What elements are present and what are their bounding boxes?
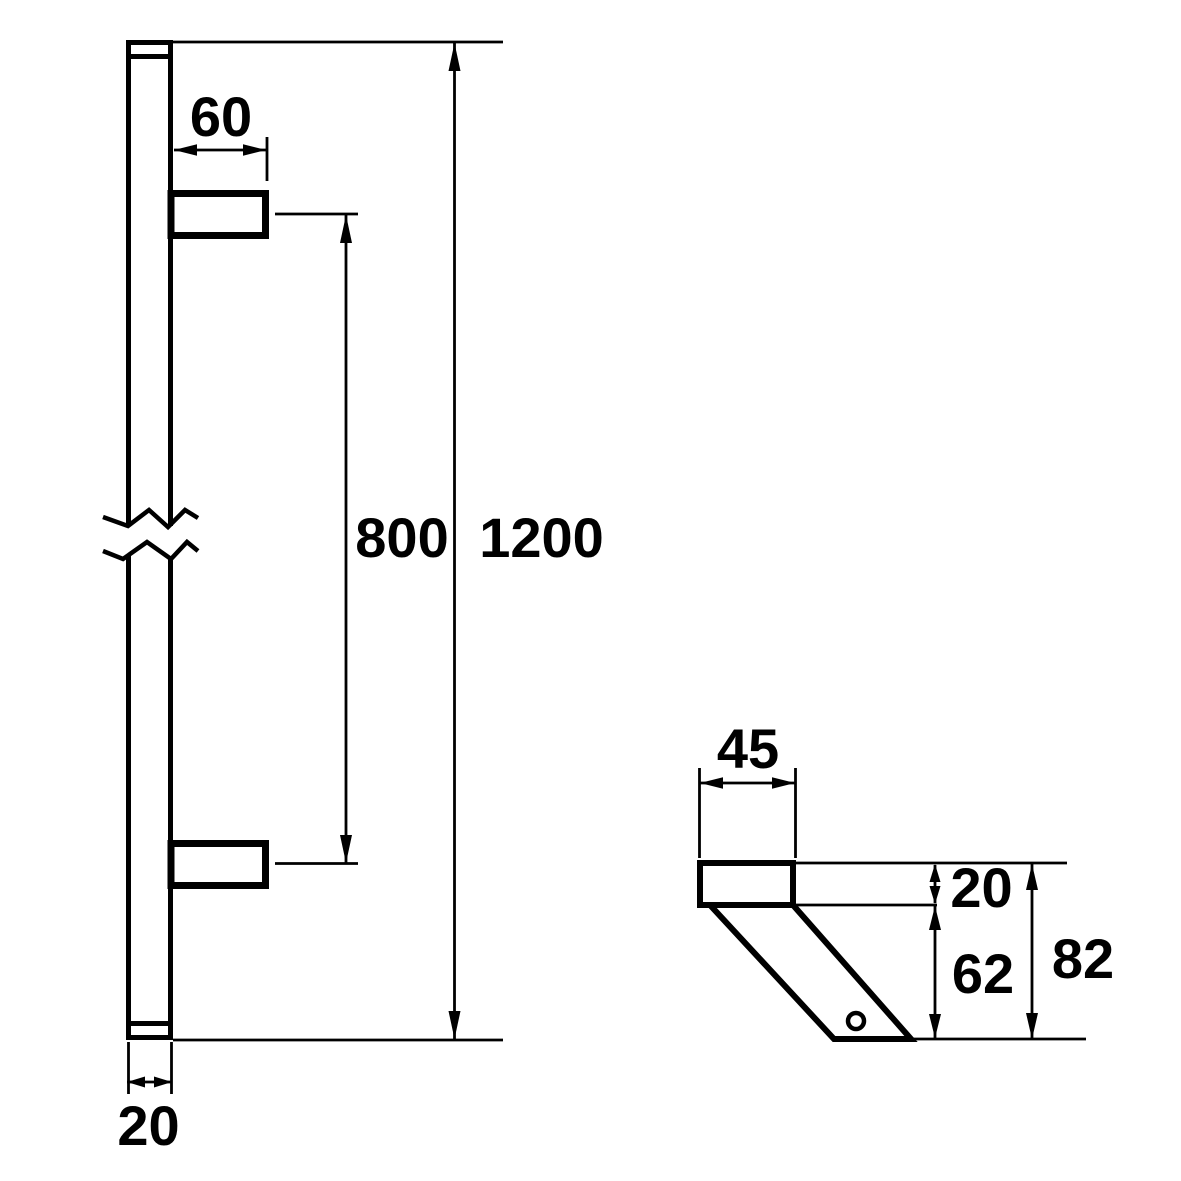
dim-82-label: 82 [1052,927,1114,990]
lower-standoff [171,844,266,886]
drawing-canvas: 60 800 1200 20 [0,0,1181,1181]
dim-20-bar-label: 20 [117,1094,179,1157]
dim-1200-label: 1200 [479,506,604,569]
bracket-plate [700,863,793,905]
screw-hole [848,1013,864,1029]
dim-45-label: 45 [717,717,779,780]
dim-60-label: 60 [190,85,252,148]
dim-800-label: 800 [355,506,448,569]
upper-standoff [171,194,266,236]
technical-drawing: 60 800 1200 20 [0,0,1181,1181]
dim-20-plate-label: 20 [950,856,1012,919]
dim-62-label: 62 [952,942,1014,1005]
